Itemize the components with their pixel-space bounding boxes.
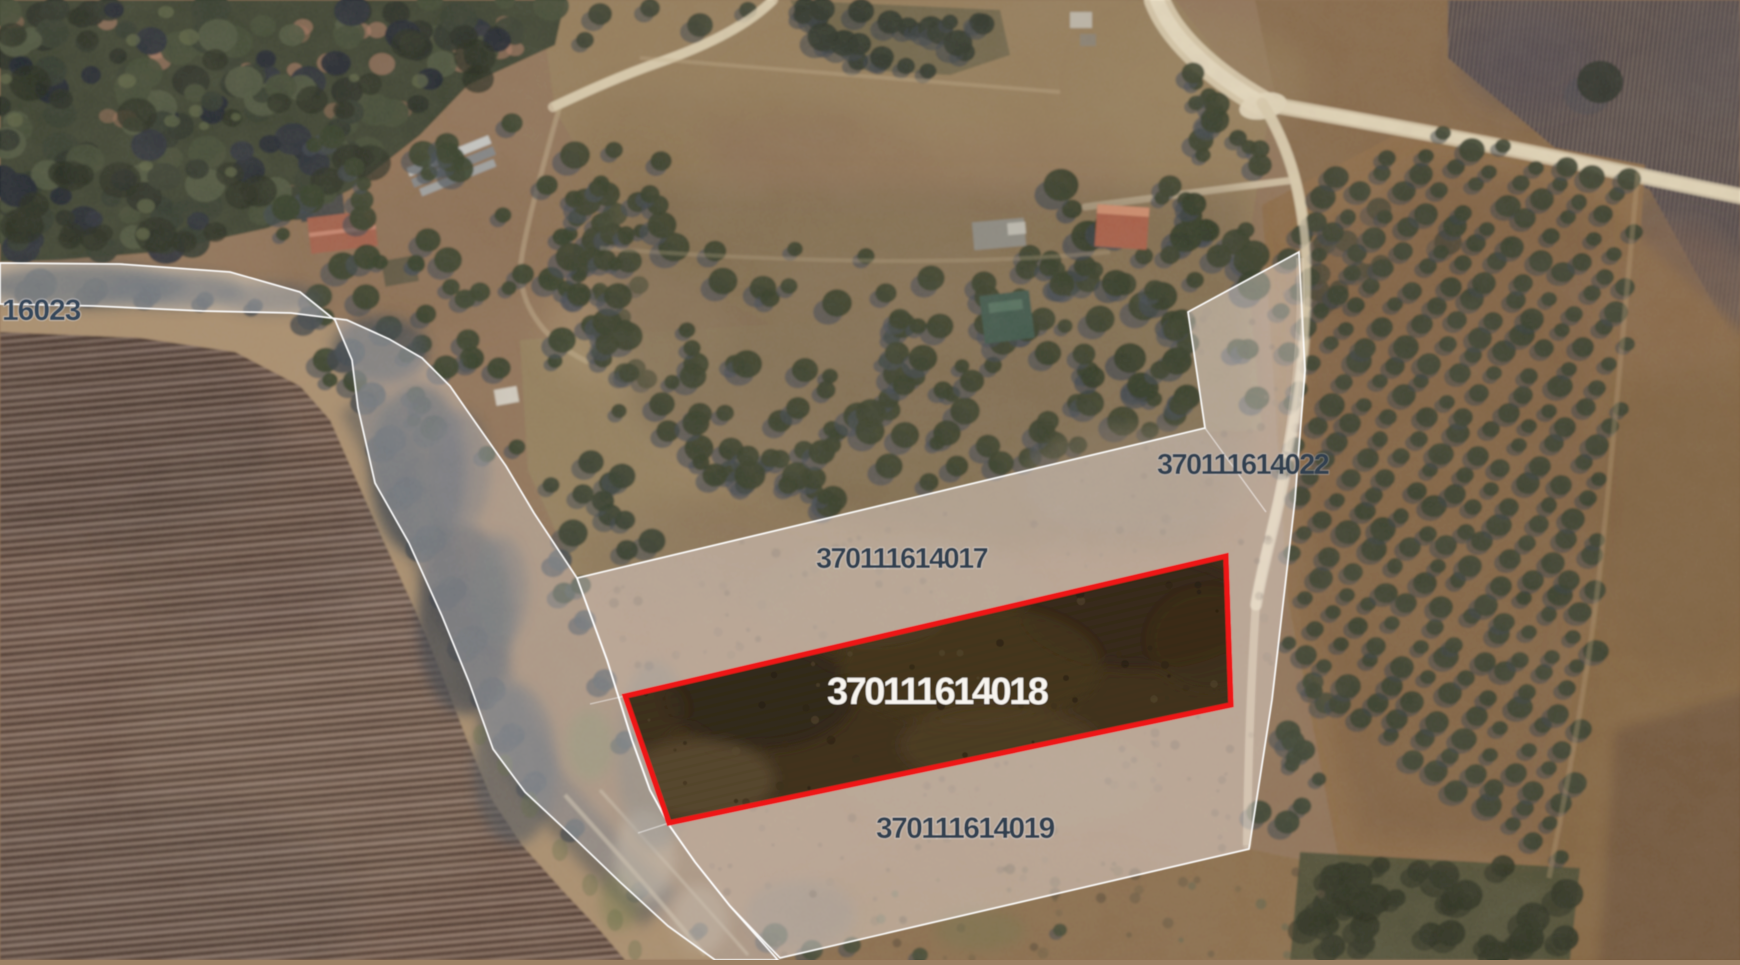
- svg-text:370111614017: 370111614017: [816, 543, 988, 575]
- svg-text:370111614019: 370111614019: [876, 812, 1055, 845]
- svg-text:370111614018: 370111614018: [827, 671, 1048, 713]
- svg-text:370111614022: 370111614022: [1157, 449, 1329, 481]
- svg-text:16023: 16023: [2, 294, 81, 327]
